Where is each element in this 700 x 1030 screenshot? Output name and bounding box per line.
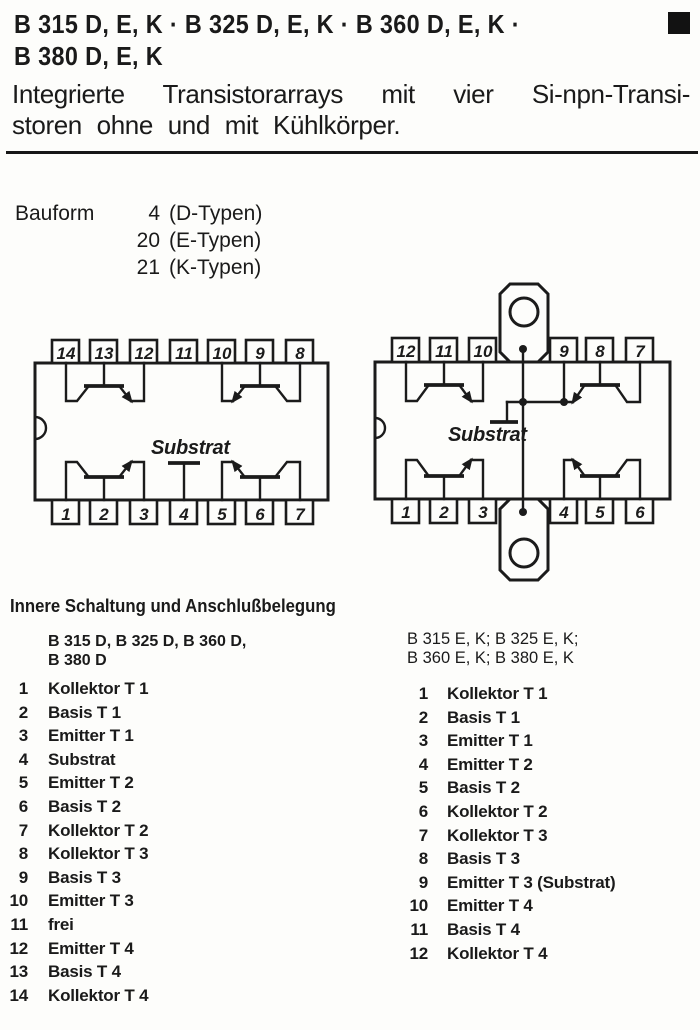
pin-row-label: Kollektor T 1 (447, 682, 547, 706)
pin-number: 7 (635, 342, 646, 361)
pin-row-label: Substrat (48, 748, 115, 772)
pin-row-label: Basis T 3 (447, 847, 520, 871)
pin-row-number: 9 (404, 871, 428, 895)
pin-row-label: Kollektor T 4 (48, 984, 148, 1008)
pin-row-number: 7 (8, 819, 28, 843)
pin-row-label: Basis T 2 (48, 795, 121, 819)
pin-row-number: 1 (8, 677, 28, 701)
pin-list-d: 1Kollektor T 1 2Basis T 1 3Emitter T 1 4… (8, 677, 148, 1007)
page-subtitle: Integrierte Transistorarrays mit vier Si… (12, 79, 690, 141)
bauform-row: 20 (E-Typen) (15, 227, 262, 254)
pin-row-label: Kollektor T 2 (447, 800, 547, 824)
pin-row: 11Basis T 4 (404, 918, 615, 942)
pin-row-number: 5 (8, 771, 28, 795)
pin-row: 11frei (8, 913, 148, 937)
pin-row-number: 9 (8, 866, 28, 890)
pin-row-label: Kollektor T 4 (447, 942, 547, 966)
pin-row-number: 10 (404, 894, 428, 918)
pin-row: 6Kollektor T 2 (404, 800, 615, 824)
pin-row: 9Basis T 3 (8, 866, 148, 890)
pin-row-label: Emitter T 4 (48, 937, 134, 961)
pin-row: 8Kollektor T 3 (8, 842, 148, 866)
pin-row-number: 8 (8, 842, 28, 866)
pin-row-label: Basis T 3 (48, 866, 121, 890)
pin-number: 8 (595, 342, 605, 361)
pin-row-number: 1 (404, 682, 428, 706)
right-header-line-2: B 360 E, K; B 380 E, K (407, 649, 579, 668)
bauform-row: Bauform 4 (D-Typen) (15, 200, 262, 227)
pin-row: 7Kollektor T 2 (8, 819, 148, 843)
bauform-type: (K-Typen) (169, 254, 261, 281)
pin-row-number: 8 (404, 847, 428, 871)
bauform-label: Bauform (15, 200, 102, 227)
pin-row-label: Basis T 4 (447, 918, 520, 942)
pin-row-label: Emitter T 1 (447, 729, 533, 753)
pin-row: 2Basis T 1 (404, 706, 615, 730)
transistor-t2 (222, 462, 300, 500)
pin-row-number: 4 (404, 753, 428, 777)
subtitle-line-1: Integrierte Transistorarrays mit vier Si… (12, 79, 690, 110)
pin-row: 10Emitter T 3 (8, 889, 148, 913)
pin-number: 11 (435, 342, 453, 361)
pin-row-label: Kollektor T 3 (447, 824, 547, 848)
pin-row-label: Emitter T 2 (447, 753, 533, 777)
right-column-header: B 315 E, K; B 325 E, K; B 360 E, K; B 38… (407, 630, 579, 668)
pin-number: 9 (559, 342, 569, 361)
pin-row-number: 7 (404, 824, 428, 848)
bauform-row: 21 (K-Typen) (15, 254, 262, 281)
left-header-line-1: B 315 D, B 325 D, B 360 D, (48, 633, 246, 652)
pin-number: 12 (397, 342, 416, 361)
pin-row-label: Kollektor T 3 (48, 842, 148, 866)
pin-row: 5Emitter T 2 (8, 771, 148, 795)
transistor-t4 (406, 362, 483, 401)
pin-number: 3 (478, 503, 488, 522)
pin-row-number: 5 (404, 776, 428, 800)
pin-row: 7Kollektor T 3 (404, 824, 615, 848)
page-title: B 315 D, E, K · B 325 D, E, K · B 360 D,… (14, 8, 520, 72)
pin-row-label: Emitter T 1 (48, 724, 134, 748)
pin-row: 3Emitter T 1 (8, 724, 148, 748)
pin-row: 13Basis T 4 (8, 960, 148, 984)
package-diagram-d: 14 13 12 11 10 9 8 1 2 3 4 (18, 330, 348, 530)
right-header-line-1: B 315 E, K; B 325 E, K; (407, 630, 579, 649)
substrat-symbol (168, 463, 200, 500)
transistor-t1 (406, 460, 483, 499)
pin-row: 8Basis T 3 (404, 847, 615, 871)
transistor-t2 (564, 460, 640, 499)
top-pin-boxes: 14 13 12 11 10 9 8 (52, 340, 313, 363)
title-line-1: B 315 D, E, K · B 325 D, E, K · B 360 D,… (14, 8, 520, 40)
pin-row-number: 11 (8, 913, 28, 937)
pin-number: 10 (213, 344, 232, 363)
pin-row-number: 3 (8, 724, 28, 748)
pin-number: 6 (635, 503, 645, 522)
pin-row-number: 12 (8, 937, 28, 961)
horizontal-rule (6, 151, 698, 154)
pin-row: 12Kollektor T 4 (404, 942, 615, 966)
title-line-2: B 380 D, E, K (14, 40, 520, 72)
pin-row-number: 10 (8, 889, 28, 913)
pin-row-label: Basis T 1 (447, 706, 520, 730)
pin-row-number: 6 (404, 800, 428, 824)
pin-number: 5 (595, 503, 605, 522)
pin-number: 11 (175, 344, 193, 363)
pin-row: 3Emitter T 1 (404, 729, 615, 753)
pin1-notch (35, 417, 46, 439)
pin-row: 6Basis T 2 (8, 795, 148, 819)
pin-row: 4Substrat (8, 748, 148, 772)
pin-row-number: 13 (8, 960, 28, 984)
pin-number: 9 (255, 344, 265, 363)
pinout-heading: Innere Schaltung und Anschlußbelegung (10, 596, 336, 617)
pin-number: 2 (438, 503, 449, 522)
bauform-type: (E-Typen) (169, 227, 261, 254)
pin-number: 7 (295, 505, 306, 524)
pin-number: 13 (95, 344, 114, 363)
bauform-type: (D-Typen) (169, 200, 262, 227)
package-diagram-ek: 12 11 10 9 8 7 1 2 3 4 5 6 (360, 272, 690, 587)
pin-row: 14Kollektor T 4 (8, 984, 148, 1008)
transistor-t3 (564, 362, 640, 402)
bauform-number: 4 (102, 200, 160, 227)
pin-number: 10 (474, 342, 493, 361)
left-column-header: B 315 D, B 325 D, B 360 D, B 380 D (48, 633, 246, 670)
datasheet-page: B 315 D, E, K · B 325 D, E, K · B 360 D,… (0, 0, 700, 1030)
bauform-number: 21 (102, 254, 160, 281)
ic-body-outline (35, 363, 328, 500)
pin-number: 4 (178, 505, 189, 524)
substrat-label: Substrat (448, 424, 528, 446)
pin-row: 1Kollektor T 1 (8, 677, 148, 701)
pin-row-number: 12 (404, 942, 428, 966)
pin-row-label: Basis T 4 (48, 960, 121, 984)
pin-number: 1 (401, 503, 410, 522)
pin-list-ek: 1Kollektor T 1 2Basis T 1 3Emitter T 1 4… (404, 682, 615, 965)
pin-row-number: 14 (8, 984, 28, 1008)
pin-row-label: frei (48, 913, 74, 937)
pin-row: 9Emitter T 3 (Substrat) (404, 871, 615, 895)
pin-row: 10Emitter T 4 (404, 894, 615, 918)
pin-row-label: Emitter T 3 (Substrat) (447, 871, 615, 895)
subtitle-line-2: storen ohne und mit Kühlkörper. (12, 110, 690, 141)
pin-number: 14 (57, 344, 76, 363)
pin-row: 1Kollektor T 1 (404, 682, 615, 706)
pin-row-number: 4 (8, 748, 28, 772)
pin-row-label: Basis T 1 (48, 701, 121, 725)
pin-row-label: Emitter T 4 (447, 894, 533, 918)
bauform-block: Bauform 4 (D-Typen) 20 (E-Typen) 21 (K-T… (15, 200, 262, 281)
bottom-pin-boxes: 1 2 3 4 5 6 7 (52, 500, 313, 524)
transistor-t3 (222, 363, 300, 401)
pin-number: 4 (558, 503, 569, 522)
pin-row-number: 2 (404, 706, 428, 730)
pin-number: 2 (98, 505, 109, 524)
pin-number: 1 (61, 505, 70, 524)
pin-row-label: Emitter T 2 (48, 771, 134, 795)
pin-row-number: 2 (8, 701, 28, 725)
pin-row-label: Kollektor T 2 (48, 819, 148, 843)
transistor-t4 (66, 363, 144, 401)
pin-row: 4Emitter T 2 (404, 753, 615, 777)
transistor-t1 (66, 462, 144, 500)
pin-number: 6 (255, 505, 265, 524)
pin-number: 5 (217, 505, 227, 524)
pin-row-number: 3 (404, 729, 428, 753)
pin-number: 12 (135, 344, 154, 363)
section-marker-icon (668, 12, 690, 34)
pin-row: 2Basis T 1 (8, 701, 148, 725)
pin-number: 3 (139, 505, 149, 524)
pin-row: 5Basis T 2 (404, 776, 615, 800)
pin-row-label: Emitter T 3 (48, 889, 134, 913)
pin-row-number: 11 (404, 918, 428, 942)
pin-row-number: 6 (8, 795, 28, 819)
pin-number: 8 (295, 344, 305, 363)
substrat-label: Substrat (151, 437, 231, 459)
bauform-number: 20 (102, 227, 160, 254)
left-header-line-2: B 380 D (48, 652, 246, 671)
pin-row: 12Emitter T 4 (8, 937, 148, 961)
pin-row-label: Kollektor T 1 (48, 677, 148, 701)
pin-row-label: Basis T 2 (447, 776, 520, 800)
